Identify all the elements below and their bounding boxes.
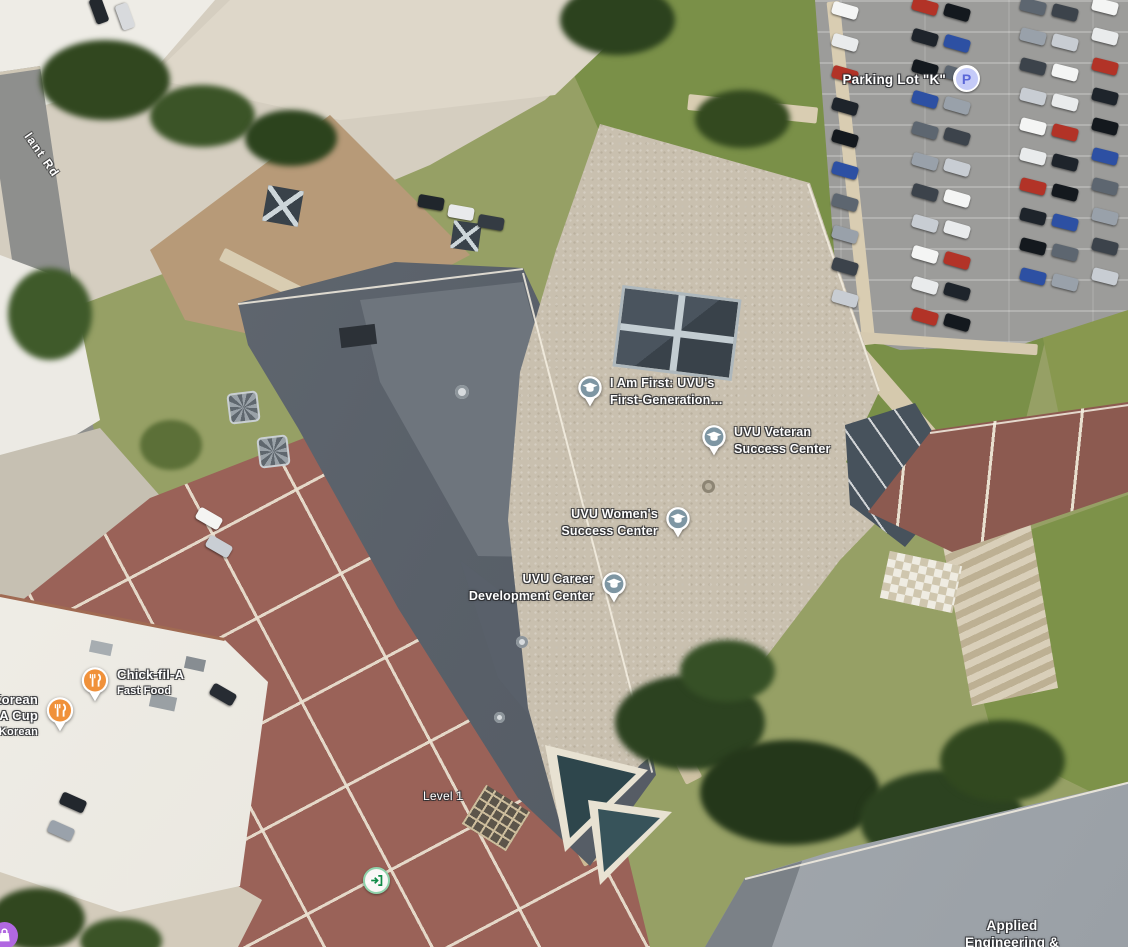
school-pin-icon[interactable] [601, 571, 627, 603]
tree [8, 268, 92, 360]
poi-uvu-womens-success-center[interactable]: UVU Women's Success Center [510, 506, 691, 540]
school-pin-icon[interactable] [665, 506, 691, 538]
poi-label: I Am First: UVU's First-Generation… [610, 375, 723, 409]
tree [150, 85, 255, 147]
purple-poi-marker[interactable] [0, 922, 18, 947]
parked-car [477, 214, 505, 231]
satellite-map[interactable]: lant Rd Parking Lot "K" P I Am First: UV… [0, 0, 1128, 947]
poi-i-am-first[interactable]: I Am First: UVU's First-Generation… [577, 375, 723, 409]
poi-korean-a-cup[interactable]: Korean A Cup Korean [0, 692, 75, 740]
poi-label: Korean A Cup Korean [0, 692, 38, 740]
roof-vent [516, 636, 528, 648]
poi-label: UVU Veteran Success Center [734, 424, 831, 458]
poi-label: Chick-fil-A Fast Food [117, 666, 184, 700]
entrance-icon[interactable] [363, 867, 390, 894]
tree [940, 720, 1065, 802]
parking-icon[interactable]: P [953, 65, 980, 92]
poi-chick-fil-a[interactable]: Chick-fil-A Fast Food [80, 666, 184, 702]
roof-vent [455, 385, 469, 399]
roof-vent-fan [226, 390, 261, 425]
restaurant-pin-icon[interactable] [80, 666, 110, 702]
poi-uvu-veteran-success-center[interactable]: UVU Veteran Success Center [701, 424, 831, 458]
poi-label: UVU Career Development Center [448, 571, 594, 605]
tree [245, 110, 337, 166]
poi-parking-lot-k[interactable]: Parking Lot "K" P [828, 65, 980, 92]
pyramid-skylight [262, 185, 304, 227]
shrub [140, 420, 202, 470]
poi-uvu-career-development-center[interactable]: UVU Career Development Center [448, 571, 627, 605]
roof-vent-fan [256, 434, 291, 469]
level-label: Level 1 [423, 788, 463, 805]
poi-label: Parking Lot "K" [828, 71, 946, 88]
building-label-applied-engineering: Applied Engineering & [938, 917, 1086, 947]
skylight [612, 285, 741, 381]
roof-vent [494, 712, 505, 723]
entrance-marker[interactable] [363, 867, 390, 894]
school-pin-icon[interactable] [701, 424, 727, 456]
poi-label: UVU Women's Success Center [510, 506, 658, 540]
roof-vent [702, 480, 715, 493]
poi-icon[interactable] [0, 922, 18, 947]
restaurant-pin-icon[interactable] [45, 696, 75, 732]
parked-car [447, 204, 475, 221]
tree [700, 740, 880, 845]
tree [695, 90, 790, 148]
tree [680, 640, 775, 702]
school-pin-icon[interactable] [577, 375, 603, 407]
